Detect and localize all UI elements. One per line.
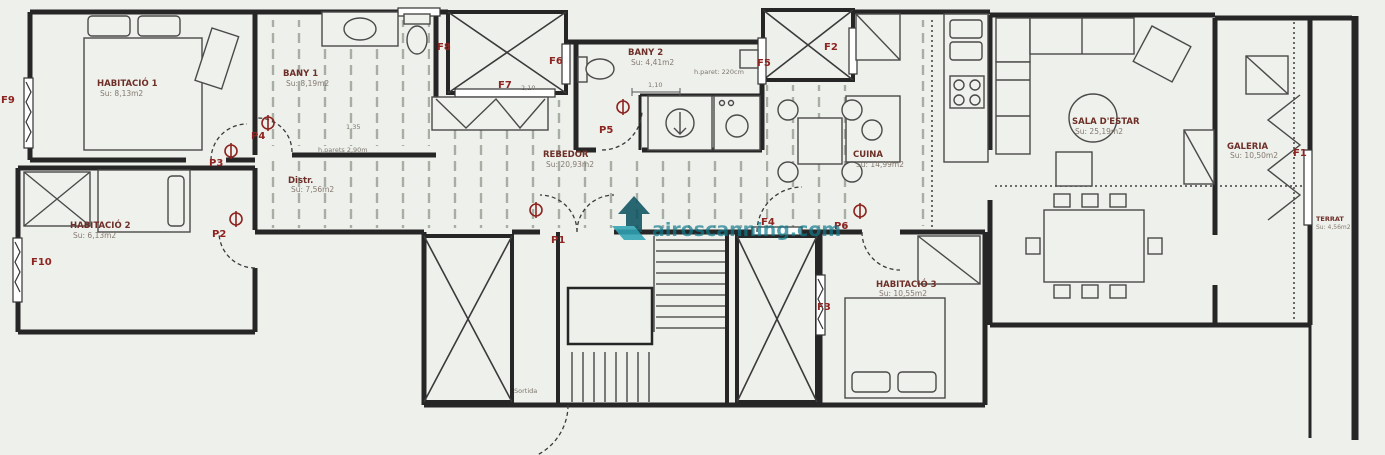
tag-f10: F10: [31, 257, 52, 268]
tag-f8: F8: [437, 42, 451, 53]
room-area-habitacio1: Su: 8,13m2: [100, 89, 143, 98]
pillow-icon: [88, 16, 130, 36]
washer-door-icon: [726, 115, 748, 137]
sink-icon: [344, 18, 376, 40]
room-label-cuina: CUINA: [853, 150, 883, 160]
kitchen-sink-icon: [950, 42, 982, 60]
tag-f2: F2: [824, 42, 838, 53]
room-area-galeria: Su: 10,50m2: [1230, 151, 1278, 160]
room-label-rebedor: REBEDOR: [543, 150, 589, 160]
room-label-bany2: BANY 2: [628, 48, 663, 58]
chair-icon: [1054, 194, 1070, 207]
room-area-distr: Su: 7,56m2: [291, 185, 334, 194]
room-area-rebedor: Su: 20,93m2: [546, 160, 594, 169]
tag-p4: P4: [251, 131, 265, 142]
closet-icon: [432, 97, 548, 130]
watermark-text: airoscanning.com: [652, 219, 841, 241]
room-label-bany1: BANY 1: [283, 69, 318, 79]
note-dim-135: 1,35: [346, 123, 360, 131]
kitchen-table-icon: [798, 118, 842, 164]
room-area-sala-destar: Su: 25,19m2: [1075, 127, 1123, 136]
tag-f9: F9: [1, 95, 15, 106]
tag-f6: F6: [549, 56, 563, 67]
pillow-icon: [852, 372, 890, 392]
note-dim-110: 1,10: [648, 81, 662, 89]
chair-icon: [1148, 238, 1162, 254]
note-wall-height-bany2: h.paret: 220cm: [694, 68, 744, 76]
tag-p1: P1: [551, 235, 565, 246]
dining-table-icon: [1044, 210, 1144, 282]
washbasin-icon: [740, 50, 758, 68]
stool-icon: [778, 100, 798, 120]
elevator-shaft: [568, 288, 652, 344]
tag-f5: F5: [757, 58, 771, 69]
chair-icon: [1054, 285, 1070, 298]
floor-plan-canvas: HABITACIÓ 1 Su: 8,13m2 BANY 1 Su: 8,19m2…: [0, 0, 1385, 455]
room-area-terrat: Su: 4,56m2: [1316, 224, 1351, 231]
room-area-bany2: Su: 4,41m2: [631, 58, 674, 67]
room-label-habitacio2: HABITACIÓ 2: [70, 219, 131, 231]
window-f6-icon: [562, 44, 570, 84]
sofa-corner-icon: [996, 18, 1030, 62]
window-f1-icon: [1304, 150, 1312, 225]
floor-plan-drawing: HABITACIÓ 1 Su: 8,13m2 BANY 1 Su: 8,19m2…: [0, 0, 1385, 455]
kitchen-sink2-icon: [862, 120, 882, 140]
stool-icon: [842, 100, 862, 120]
pillow-icon: [168, 176, 184, 226]
room-area-bany1: Su: 8,19m2: [286, 79, 329, 88]
stool-icon: [778, 162, 798, 182]
tag-f7: F7: [498, 80, 512, 91]
toilet-icon: [407, 26, 427, 54]
note-wall-height-main: h.parets 2,90m: [318, 146, 368, 154]
kitchen-sink-icon: [950, 20, 982, 38]
sofa-icon: [996, 62, 1030, 154]
tag-p2: P2: [212, 229, 226, 240]
note-dim-210: 2,10: [521, 84, 535, 92]
tag-f3: F3: [817, 302, 831, 313]
room-label-habitacio1: HABITACIÓ 1: [97, 77, 158, 89]
room-label-terrat: TERRAT: [1316, 215, 1344, 223]
tag-p3: P3: [209, 158, 223, 169]
tag-f1: F1: [1293, 148, 1307, 159]
room-area-cuina: Su: 14,99m2: [856, 160, 904, 169]
pillow-icon: [898, 372, 936, 392]
room-area-habitacio2: Su: 6,13m2: [73, 231, 116, 240]
tag-p5: P5: [599, 125, 613, 136]
chair-icon: [1082, 194, 1098, 207]
toilet-icon: [586, 59, 614, 79]
toilet-tank-icon: [404, 14, 430, 24]
note-exit: Sortida: [514, 387, 537, 395]
chair-icon: [1110, 194, 1126, 207]
chair-icon: [1110, 285, 1126, 298]
chair-icon: [1026, 238, 1040, 254]
side-table-icon: [1056, 152, 1092, 186]
room-label-sala-destar: SALA D'ESTAR: [1072, 117, 1140, 127]
pillow-icon: [138, 16, 180, 36]
chair-icon: [1082, 285, 1098, 298]
room-area-habitacio3: Su: 10,55m2: [879, 289, 927, 298]
